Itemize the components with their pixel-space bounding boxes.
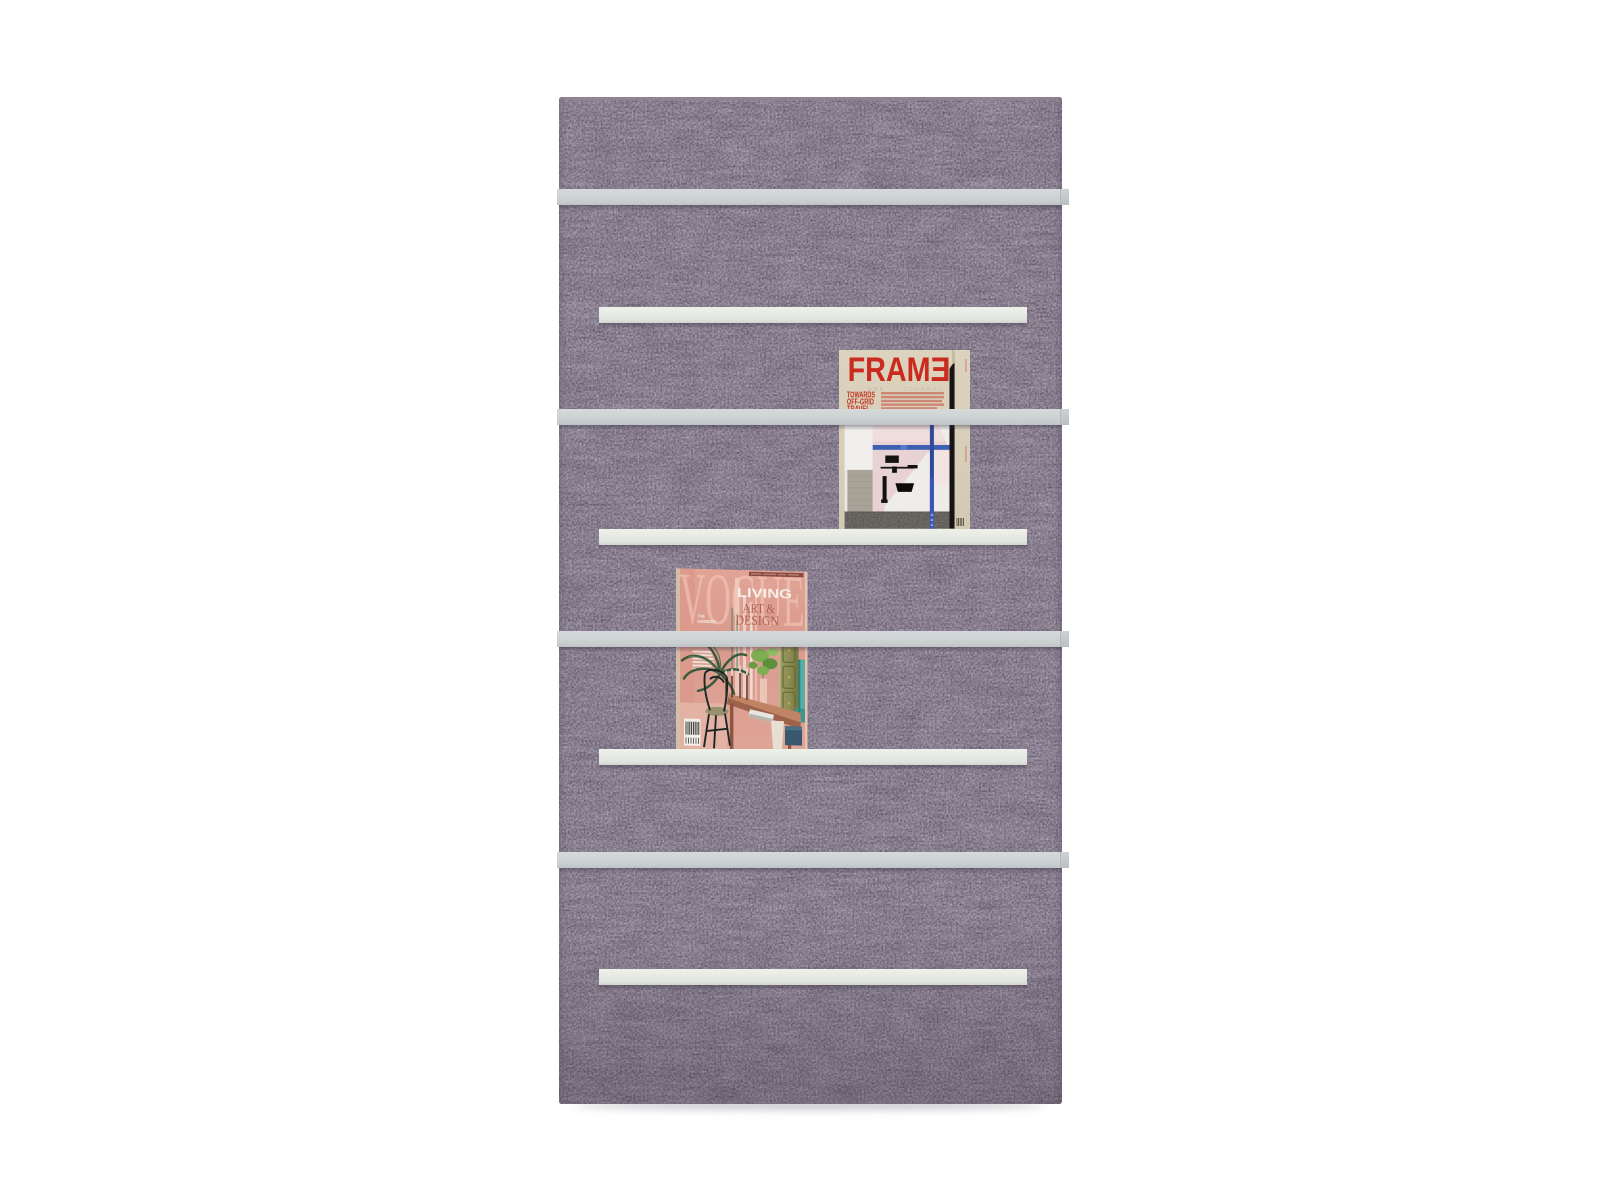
svg-text:DESIGN: DESIGN: [735, 613, 779, 629]
svg-text:GARDENER: GARDENER: [697, 619, 716, 624]
svg-text:E: E: [930, 351, 950, 389]
svg-text:FRAM: FRAM: [847, 351, 930, 389]
svg-text:LIVING: LIVING: [737, 585, 792, 601]
